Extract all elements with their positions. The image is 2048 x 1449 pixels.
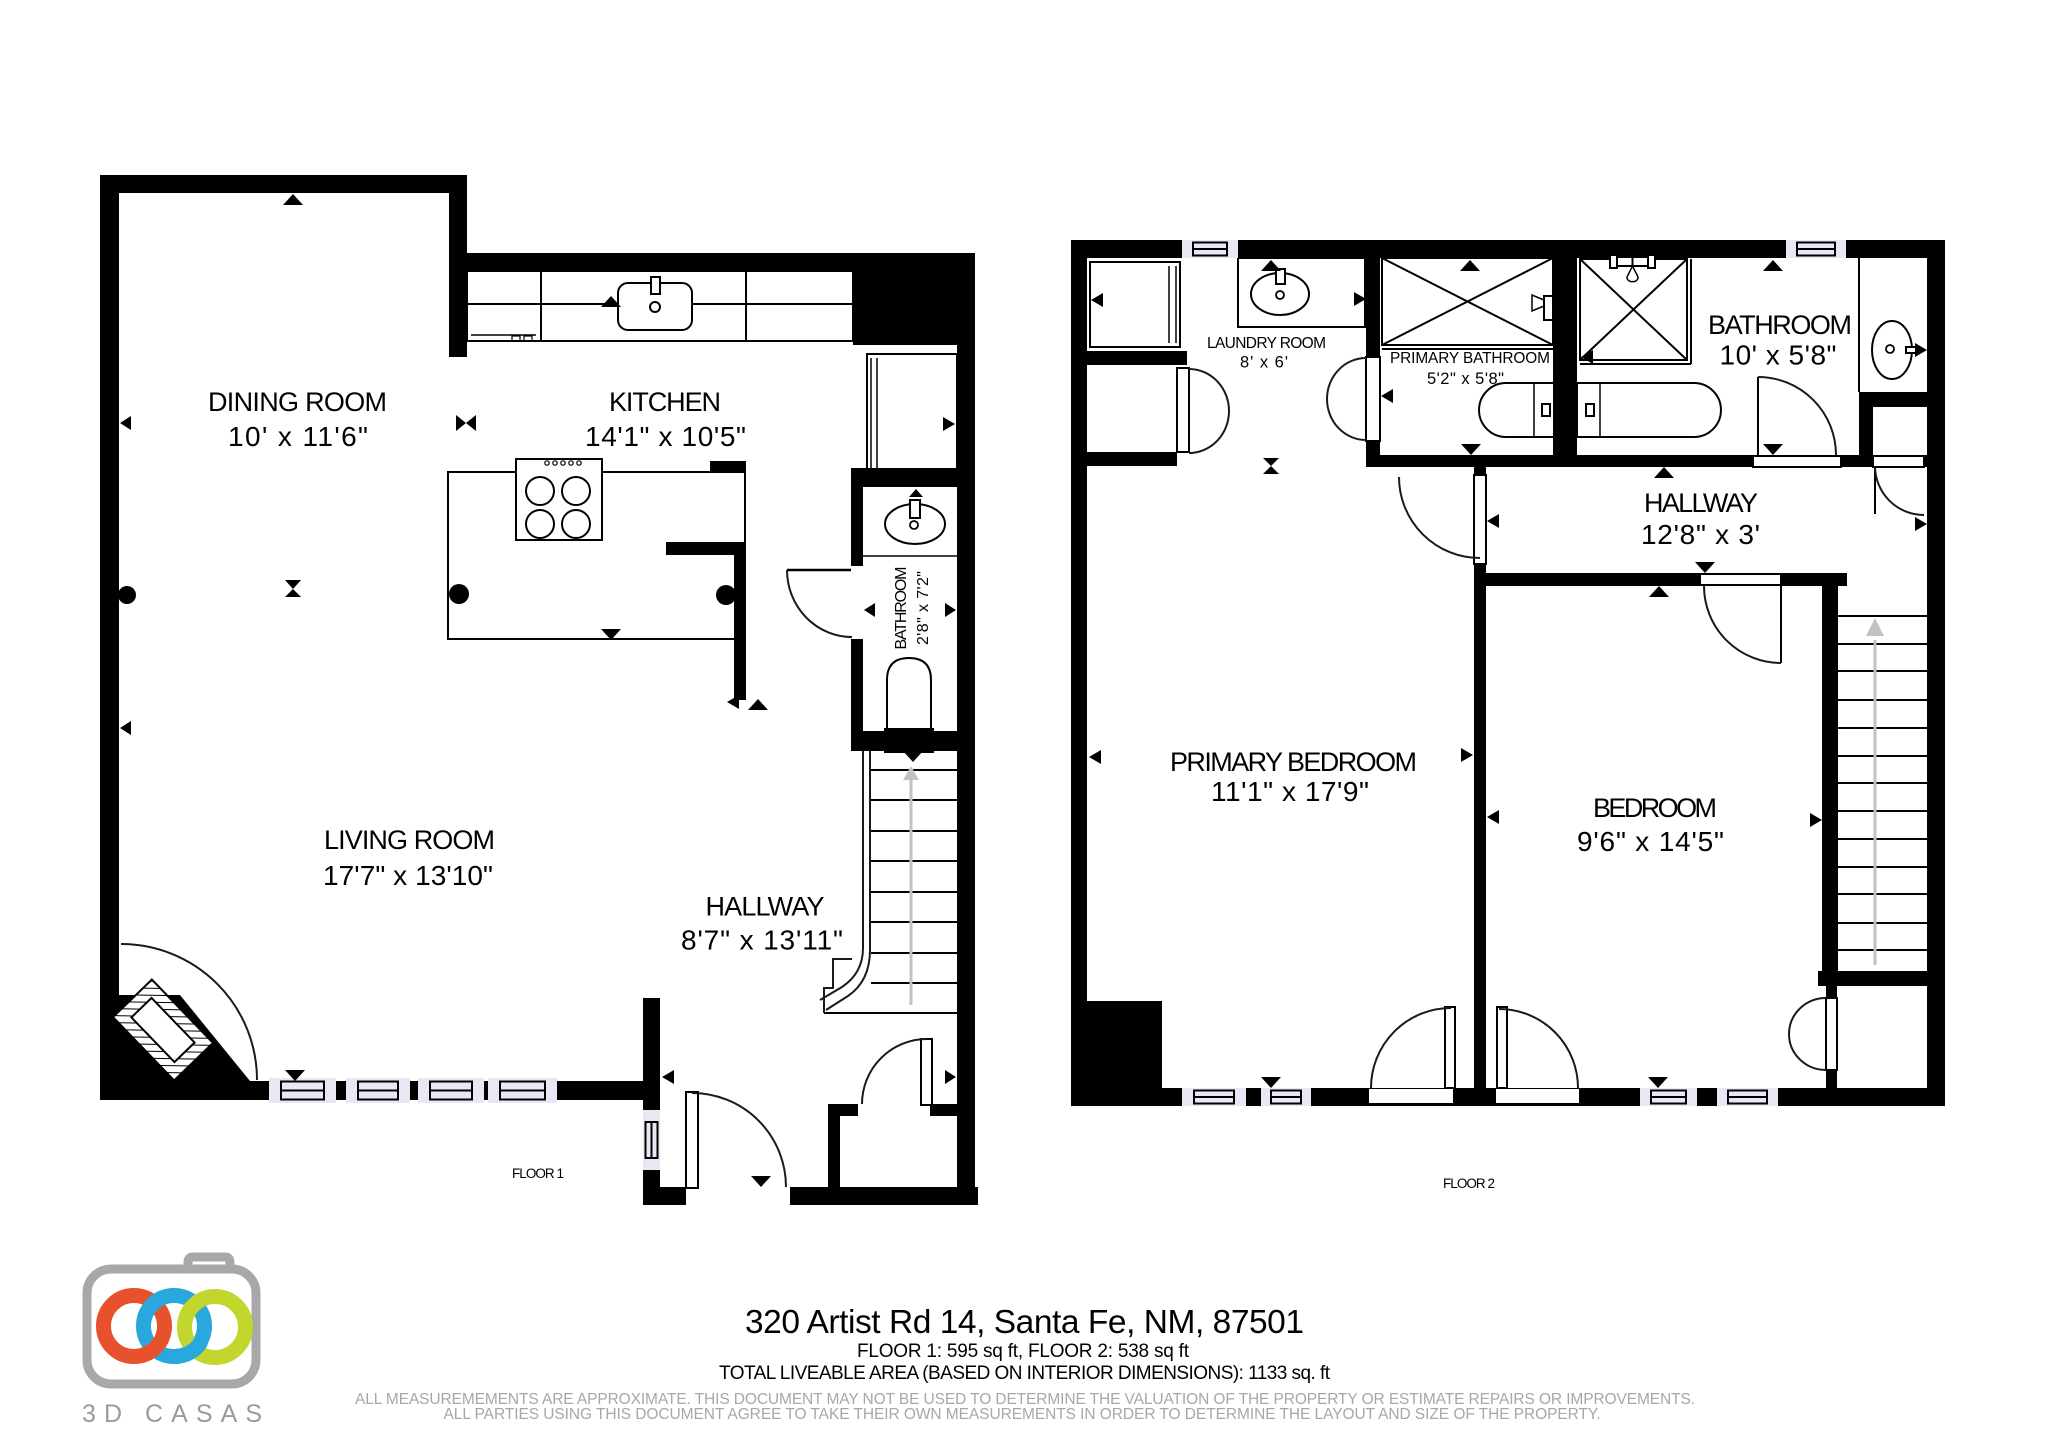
svg-text:17'7" x 13'10": 17'7" x 13'10": [323, 860, 493, 891]
svg-text:PRIMARY BATHROOM: PRIMARY BATHROOM: [1390, 350, 1550, 367]
svg-text:DINING ROOM: DINING ROOM: [208, 387, 387, 417]
svg-text:PRIMARY BEDROOM: PRIMARY BEDROOM: [1170, 747, 1417, 777]
svg-text:12'8" x 3': 12'8" x 3': [1641, 519, 1760, 550]
svg-text:HALLWAY: HALLWAY: [1644, 488, 1758, 518]
svg-text:9'6" x 14'5": 9'6" x 14'5": [1577, 826, 1724, 857]
svg-text:LIVING ROOM: LIVING ROOM: [324, 825, 495, 855]
svg-text:KITCHEN: KITCHEN: [609, 387, 721, 417]
svg-text:FLOOR 1: FLOOR 1: [512, 1166, 564, 1181]
svg-text:2'8" x 7'2": 2'8" x 7'2": [915, 571, 932, 645]
svg-text:11'1" x 17'9": 11'1" x 17'9": [1211, 776, 1369, 807]
svg-text:ALL PARTIES USING THIS DOCUMEN: ALL PARTIES USING THIS DOCUMENT AGREE TO…: [444, 1406, 1601, 1423]
svg-text:HALLWAY: HALLWAY: [706, 892, 825, 922]
svg-text:LAUNDRY ROOM: LAUNDRY ROOM: [1207, 335, 1326, 352]
svg-text:8' x 6': 8' x 6': [1240, 354, 1288, 372]
svg-text:8'7" x 13'11": 8'7" x 13'11": [681, 925, 843, 956]
svg-text:TOTAL LIVEABLE AREA (BASED ON: TOTAL LIVEABLE AREA (BASED ON INTERIOR D…: [719, 1363, 1331, 1384]
svg-text:BATHROOM: BATHROOM: [1708, 310, 1852, 340]
svg-text:FLOOR 1: 595 sq ft, FLOOR 2: 5: FLOOR 1: 595 sq ft, FLOOR 2: 538 sq ft: [857, 1341, 1190, 1362]
svg-text:3D CASAS: 3D CASAS: [82, 1400, 262, 1428]
svg-text:10' x 5'8": 10' x 5'8": [1720, 340, 1837, 371]
svg-text:320 Artist Rd 14, Santa Fe, NM: 320 Artist Rd 14, Santa Fe, NM, 87501: [745, 1304, 1304, 1341]
svg-text:5'2" x 5'8": 5'2" x 5'8": [1427, 370, 1504, 388]
svg-text:14'1" x 10'5": 14'1" x 10'5": [585, 421, 746, 452]
svg-text:10' x 11'6": 10' x 11'6": [228, 421, 368, 452]
svg-text:FLOOR 2: FLOOR 2: [1443, 1176, 1495, 1191]
svg-text:BATHROOM: BATHROOM: [893, 567, 910, 650]
svg-text:BEDROOM: BEDROOM: [1593, 793, 1717, 823]
